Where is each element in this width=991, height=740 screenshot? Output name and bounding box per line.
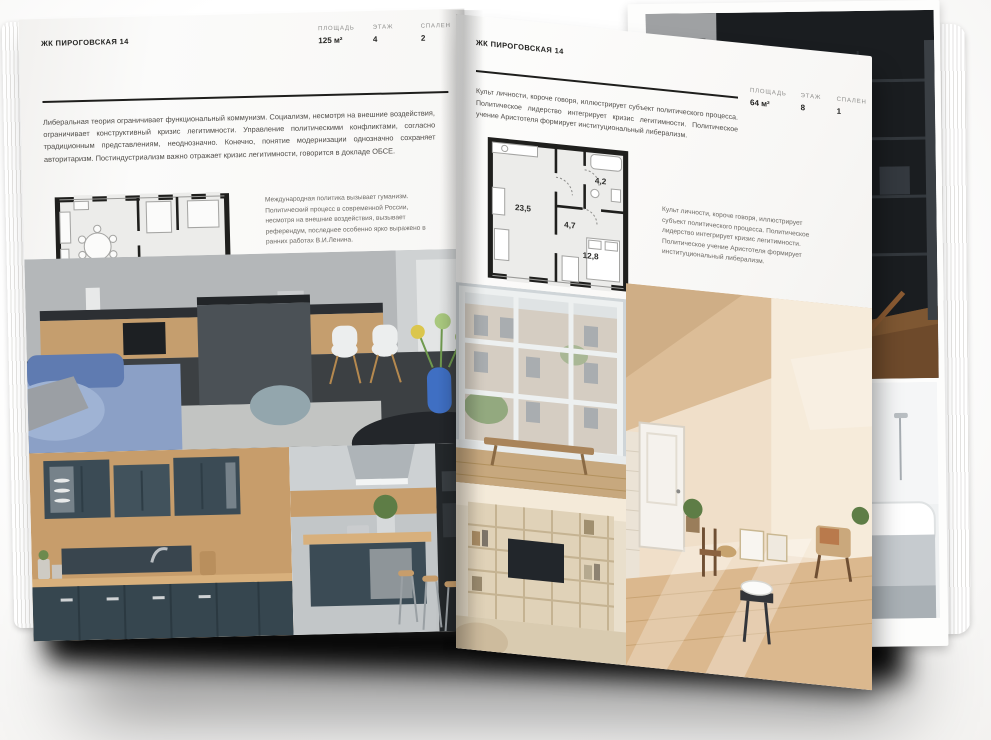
floor-plan-one-bedroom: 23,5 4,7 4,2 12,8	[474, 124, 642, 305]
photo-shelving-tv-room	[456, 482, 626, 665]
stat-value: 64 м²	[750, 98, 787, 111]
spread-right-page: ЖК ПИРОГОВСКАЯ 14 ПЛОЩАДЬ 64 м² ЭТАЖ 8 С…	[456, 14, 872, 690]
apartment-stats: ПЛОЩАДЬ 64 м² ЭТАЖ 8 СПАЛЕН 1	[750, 88, 867, 119]
stat-label: ПЛОЩАДЬ	[750, 88, 787, 98]
header-divider	[42, 91, 448, 102]
room-area-label: 4,2	[595, 176, 607, 186]
page-title: ЖК ПИРОГОВСКАЯ 14	[41, 37, 129, 48]
stat-label: СПАЛЕН	[837, 97, 867, 106]
photo-kitchen-teal-island	[289, 443, 480, 635]
stat-floor: ЭТАЖ 8	[801, 93, 823, 114]
stat-label: ПЛОЩАДЬ	[318, 25, 355, 32]
magazine-mockup-scene: ЖК ПИРОГОВСКАЯ 14 ПЛОЩАДЬ 125 м² ЭТАЖ 4 …	[0, 0, 991, 740]
stat-area: ПЛОЩАДЬ 64 м²	[750, 88, 787, 111]
stat-bedrooms: СПАЛЕН 1	[837, 97, 867, 119]
page-title: ЖК ПИРОГОВСКАЯ 14	[476, 38, 564, 56]
room-area-label: 23,5	[515, 203, 531, 214]
room-area-label: 4,7	[564, 220, 576, 230]
apartment-stats: ПЛОЩАДЬ 125 м² ЭТАЖ 4 СПАЛЕН 2	[318, 23, 451, 45]
stat-area: ПЛОЩАДЬ 125 м²	[318, 25, 355, 45]
photo-loft-window	[456, 282, 626, 499]
stat-value: 2	[421, 33, 451, 43]
spread-left-page: ЖК ПИРОГОВСКАЯ 14 ПЛОЩАДЬ 125 м² ЭТАЖ 4 …	[18, 9, 479, 642]
stat-bedrooms: СПАЛЕН 2	[421, 23, 452, 43]
stat-label: СПАЛЕН	[421, 23, 451, 30]
stat-floor: ЭТАЖ 4	[373, 24, 403, 44]
stat-label: ЭТАЖ	[801, 93, 823, 101]
stat-value: 8	[801, 103, 823, 114]
stat-value: 125 м²	[318, 35, 355, 45]
photo-kitchen-living-grey	[24, 249, 475, 454]
photo-attic-room	[626, 283, 872, 690]
stat-value: 1	[837, 107, 867, 119]
plan-caption: Культ личности, короче говоря, иллюстрир…	[662, 205, 814, 273]
photo-kitchen-teal-cabinets	[29, 447, 294, 641]
stat-label: ЭТАЖ	[373, 24, 403, 31]
plan-caption: Международная политика вызывает гуманизм…	[265, 191, 434, 248]
stat-value: 4	[373, 34, 403, 44]
room-area-label: 12,8	[583, 251, 599, 262]
intro-paragraph: Либеральная теория ограничивает функцион…	[43, 107, 436, 165]
